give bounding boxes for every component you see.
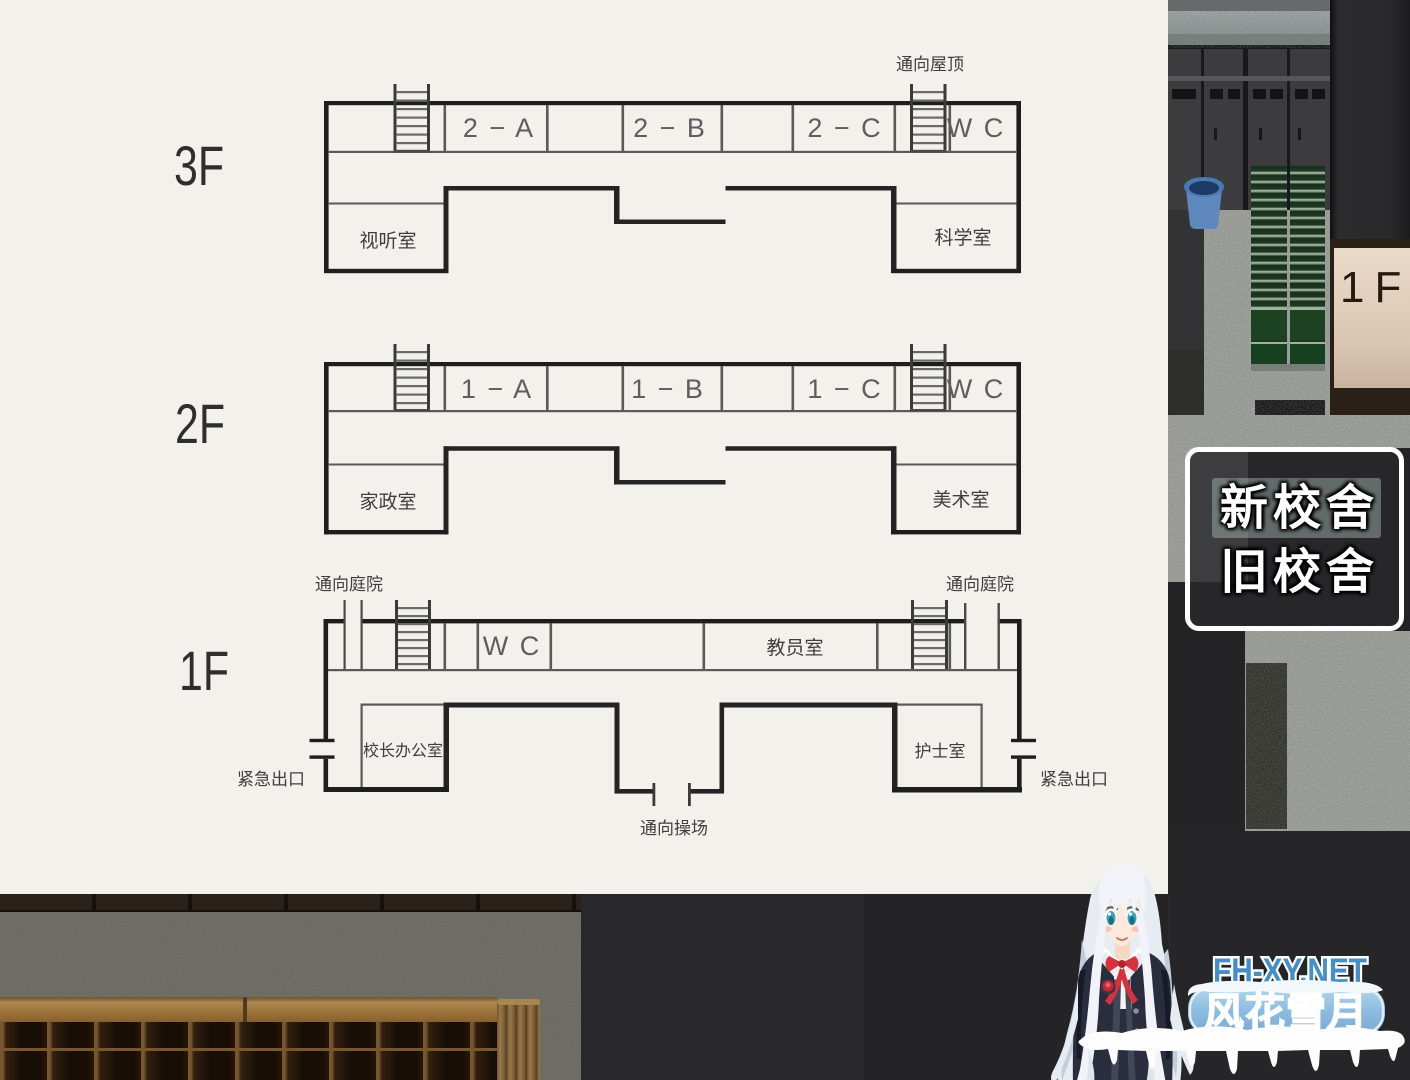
svg-text:通向操场: 通向操场	[640, 819, 708, 838]
svg-text:通向庭院: 通向庭院	[315, 575, 383, 594]
svg-text:紧急出口: 紧急出口	[237, 770, 305, 789]
svg-text:W C: W C	[483, 631, 541, 661]
svg-text:3F: 3F	[174, 134, 224, 197]
svg-text:W C: W C	[947, 113, 1005, 143]
svg-text:教员室: 教员室	[766, 637, 823, 659]
svg-text:1F: 1F	[179, 639, 229, 702]
svg-text:通向庭院: 通向庭院	[946, 575, 1014, 594]
svg-text:护士室: 护士室	[915, 742, 966, 761]
svg-text:家政室: 家政室	[359, 491, 416, 513]
svg-text:W C: W C	[947, 374, 1005, 404]
svg-text:美术室: 美术室	[932, 489, 989, 511]
svg-text:1 − A: 1 − A	[461, 374, 533, 404]
svg-text:2F: 2F	[175, 392, 225, 455]
svg-text:紧急出口: 紧急出口	[1040, 770, 1108, 789]
svg-text:1 − B: 1 − B	[631, 374, 705, 404]
svg-text:1 − C: 1 − C	[807, 374, 882, 404]
svg-text:通向屋顶: 通向屋顶	[896, 55, 964, 74]
svg-text:科学室: 科学室	[934, 227, 991, 249]
svg-text:视听室: 视听室	[359, 230, 416, 252]
svg-text:校长办公室: 校长办公室	[363, 742, 443, 760]
svg-text:2 − C: 2 − C	[807, 113, 882, 143]
svg-text:2 − A: 2 − A	[463, 113, 535, 143]
svg-text:2 − B: 2 − B	[633, 113, 707, 143]
